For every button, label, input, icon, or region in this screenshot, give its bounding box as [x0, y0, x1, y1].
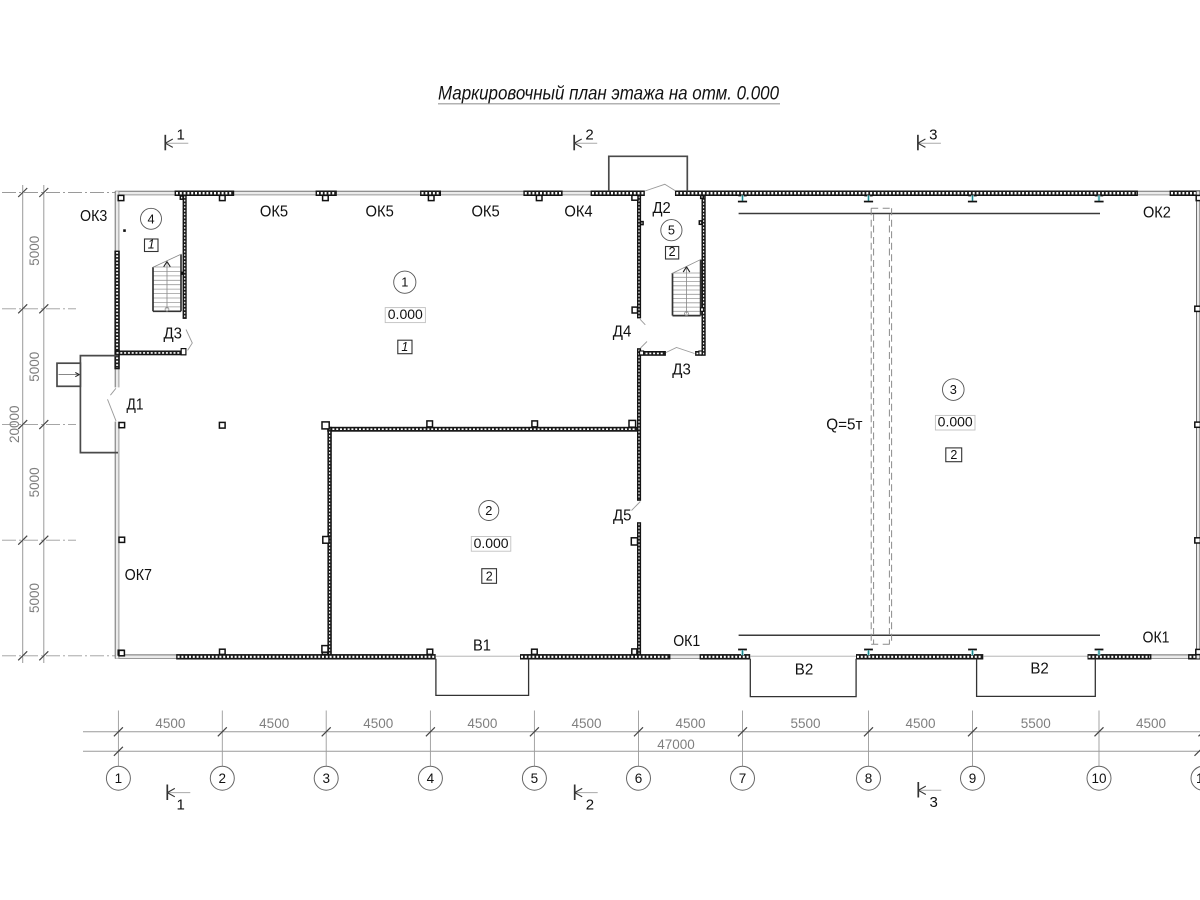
svg-text:4500: 4500 — [363, 716, 393, 731]
svg-text:5: 5 — [668, 223, 675, 238]
svg-text:0.000: 0.000 — [388, 306, 423, 322]
svg-text:3: 3 — [950, 382, 957, 397]
svg-text:1: 1 — [401, 340, 408, 354]
svg-text:0.000: 0.000 — [938, 414, 973, 430]
svg-text:5000: 5000 — [27, 236, 42, 266]
svg-text:3: 3 — [930, 794, 938, 811]
svg-text:ОК5: ОК5 — [366, 203, 394, 220]
svg-text:1: 1 — [401, 275, 408, 290]
svg-text:ОК5: ОК5 — [471, 203, 499, 220]
svg-text:4500: 4500 — [259, 716, 289, 731]
svg-text:В1: В1 — [473, 637, 491, 654]
svg-text:3: 3 — [929, 127, 937, 144]
svg-text:Д5: Д5 — [613, 508, 632, 525]
svg-text:5: 5 — [531, 771, 539, 786]
svg-text:1: 1 — [148, 238, 155, 252]
svg-text:10: 10 — [1091, 771, 1106, 786]
svg-text:20000: 20000 — [7, 405, 22, 443]
svg-text:4: 4 — [427, 771, 435, 786]
svg-text:0.000: 0.000 — [474, 535, 509, 551]
svg-text:5000: 5000 — [27, 352, 42, 382]
svg-text:4500: 4500 — [467, 716, 497, 731]
svg-text:9: 9 — [969, 771, 977, 786]
svg-text:Q=5т: Q=5т — [826, 417, 863, 434]
svg-text:Д3: Д3 — [164, 325, 183, 342]
svg-text:5500: 5500 — [790, 716, 820, 731]
svg-text:6: 6 — [635, 771, 643, 786]
svg-text:2: 2 — [950, 448, 957, 462]
svg-text:7: 7 — [739, 771, 747, 786]
svg-text:2: 2 — [485, 503, 492, 518]
svg-text:1: 1 — [177, 127, 185, 144]
svg-text:ОК4: ОК4 — [564, 203, 592, 220]
svg-text:5000: 5000 — [27, 467, 42, 497]
svg-text:ОК1: ОК1 — [673, 633, 700, 650]
svg-text:В2: В2 — [1030, 660, 1049, 677]
svg-text:47000: 47000 — [657, 737, 695, 752]
svg-text:3: 3 — [322, 771, 330, 786]
svg-text:ОК3: ОК3 — [80, 208, 107, 225]
svg-text:4500: 4500 — [905, 716, 935, 731]
svg-text:1: 1 — [115, 771, 123, 786]
svg-text:5500: 5500 — [1021, 716, 1051, 731]
svg-text:ОК2: ОК2 — [1143, 205, 1171, 222]
svg-text:2: 2 — [669, 245, 676, 259]
svg-text:11: 11 — [1196, 771, 1200, 786]
svg-text:ОК7: ОК7 — [125, 567, 152, 584]
svg-text:ОК1: ОК1 — [1143, 629, 1170, 646]
svg-text:4500: 4500 — [675, 716, 705, 731]
svg-text:Д2: Д2 — [653, 200, 671, 217]
svg-text:5000: 5000 — [27, 583, 42, 613]
svg-text:Д4: Д4 — [613, 324, 632, 341]
svg-text:Д3: Д3 — [672, 362, 691, 379]
svg-text:4500: 4500 — [155, 716, 185, 731]
svg-text:8: 8 — [865, 771, 873, 786]
svg-text:Д1: Д1 — [127, 397, 144, 414]
svg-text:2: 2 — [486, 570, 493, 584]
svg-text:4: 4 — [147, 211, 154, 226]
svg-text:Маркировочный план этажа на от: Маркировочный план этажа на отм. 0.000 — [438, 84, 779, 105]
svg-text:4500: 4500 — [571, 716, 601, 731]
svg-text:2: 2 — [219, 771, 227, 786]
svg-text:2: 2 — [585, 127, 593, 144]
svg-text:В2: В2 — [795, 661, 814, 678]
svg-text:1: 1 — [177, 797, 185, 814]
svg-text:4500: 4500 — [1136, 716, 1166, 731]
svg-text:ОК5: ОК5 — [260, 203, 288, 220]
svg-text:2: 2 — [586, 797, 594, 814]
